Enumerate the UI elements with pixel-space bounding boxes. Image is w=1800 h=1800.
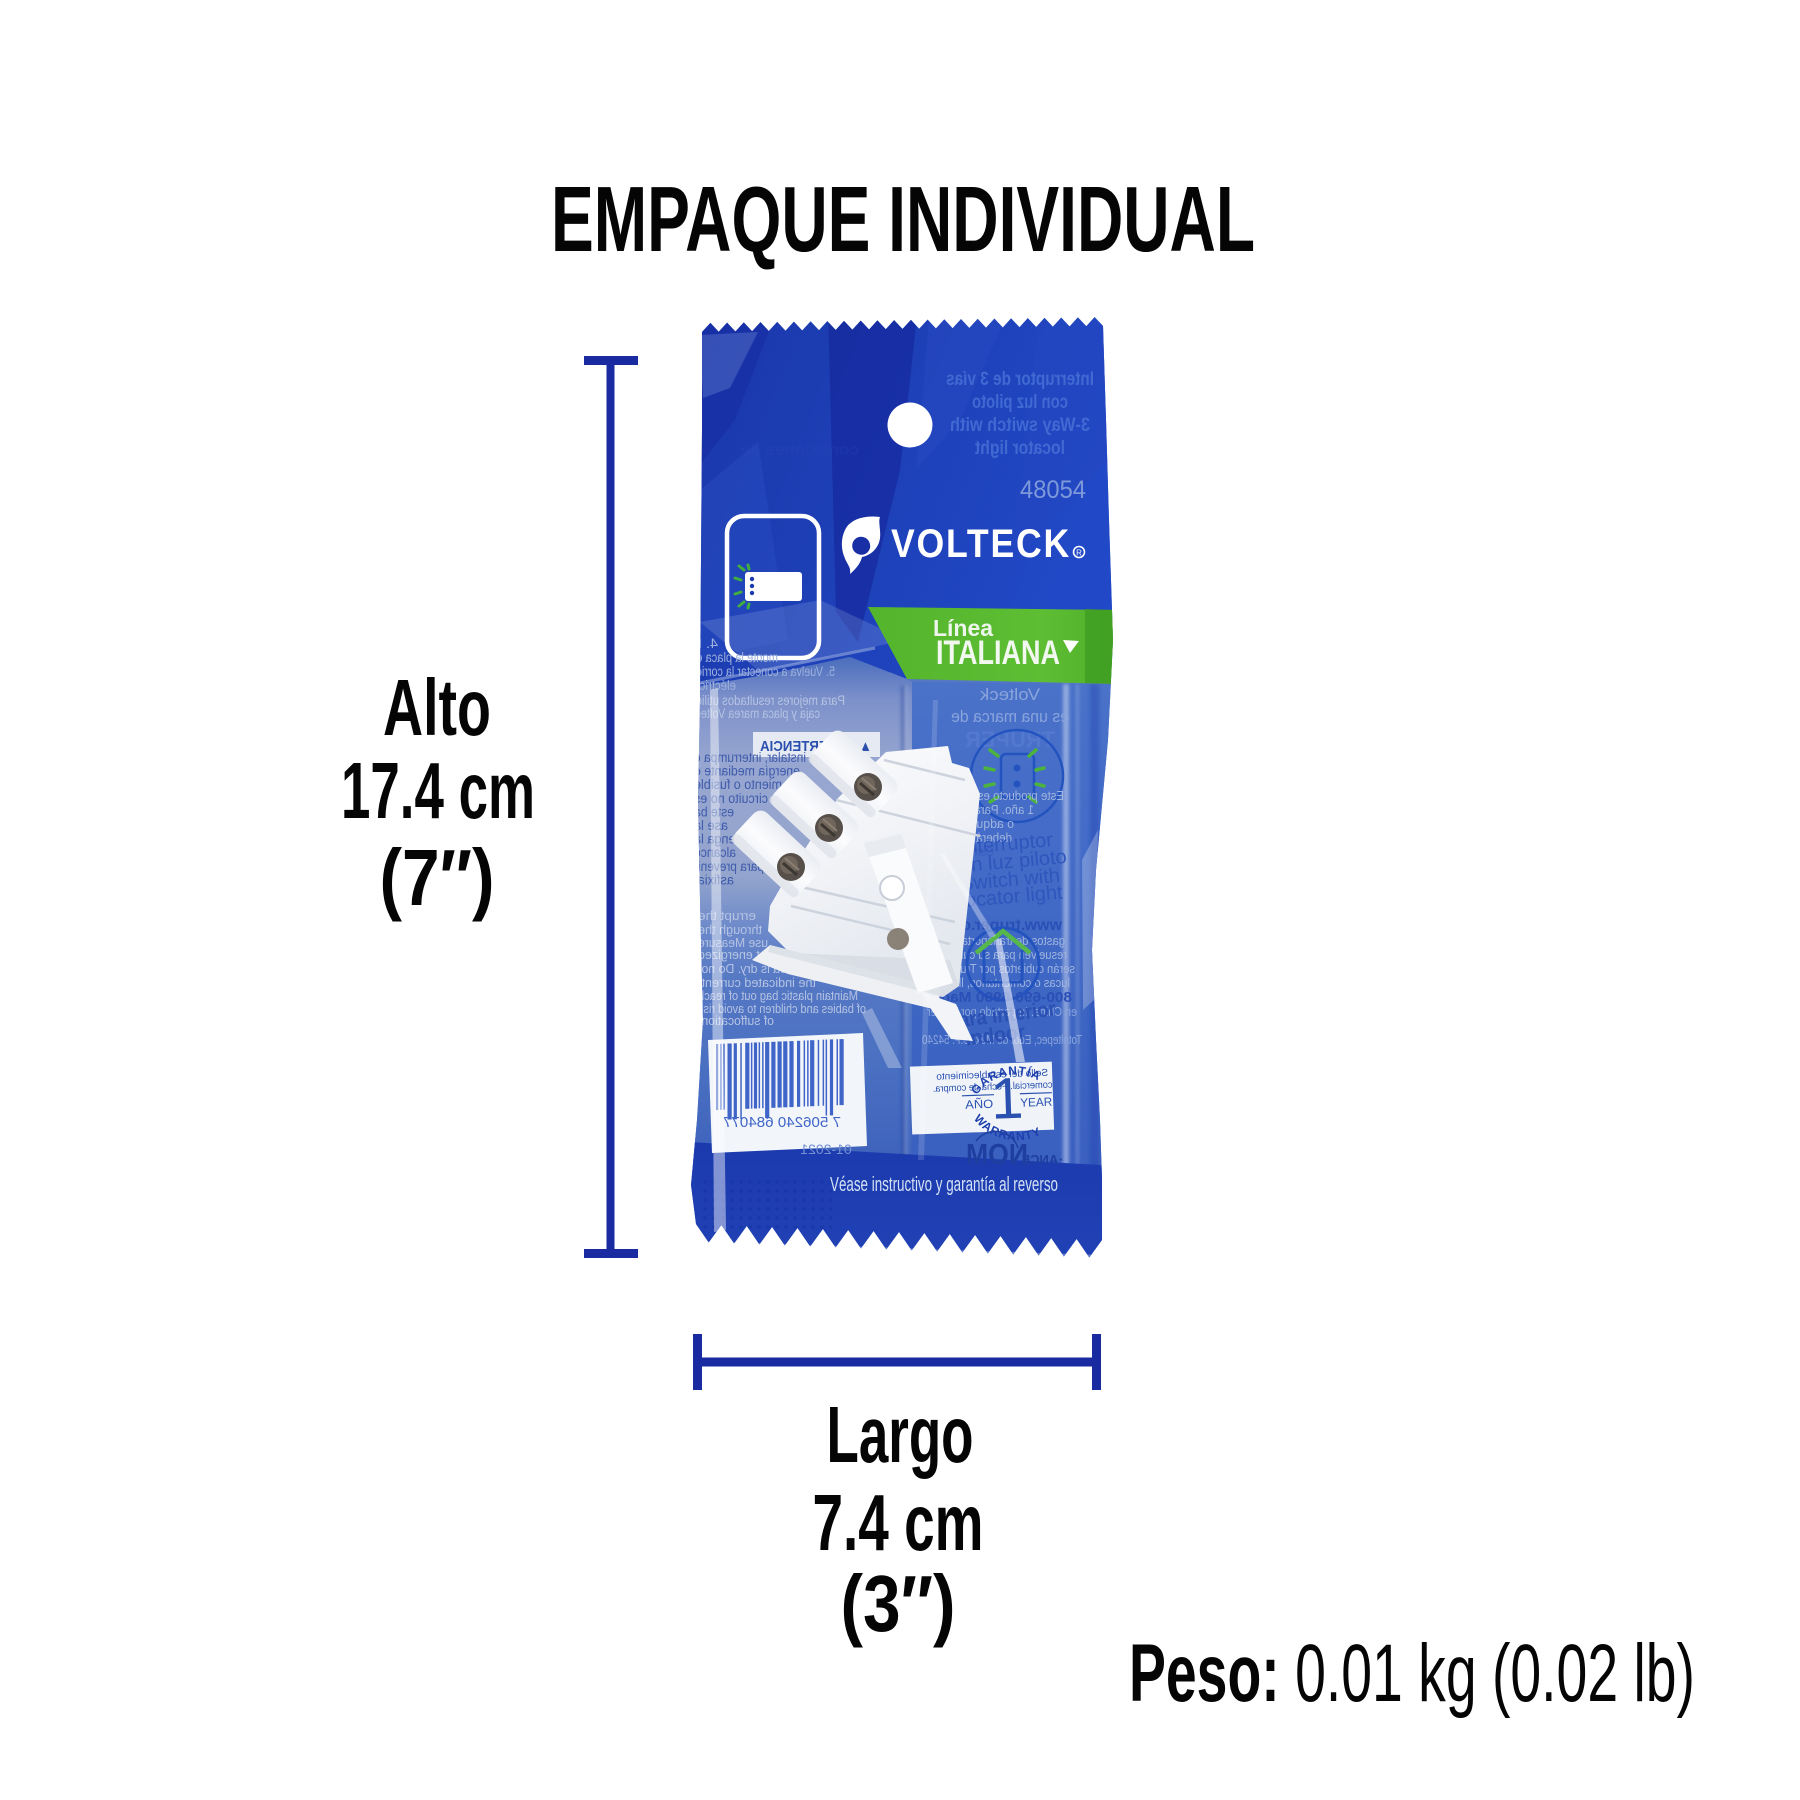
svg-text:5. Vuelva a conectar la corri: 5. Vuelva a conectar la corrien [690, 664, 835, 679]
svg-text:7.4 cm: 7.4 cm [813, 1478, 984, 1567]
svg-text:17.4 cm: 17.4 cm [341, 746, 535, 835]
svg-text:locator light: locator light [975, 437, 1065, 459]
svg-text:monte la placa en: monte la placa en [690, 650, 778, 665]
svg-text:AÑO: AÑO [965, 1097, 993, 1112]
svg-text:NOM: NOM [966, 1139, 1028, 1171]
svg-text:Alto: Alto [383, 663, 491, 752]
svg-text:·ANCE: ·ANCE [1021, 1152, 1062, 1167]
svg-text:3-Way switch with: 3-Way switch with [950, 414, 1090, 436]
svg-text:Interruptor de 3 vías: Interruptor de 3 vías [946, 368, 1094, 390]
svg-text:7 506240 684077: 7 506240 684077 [723, 1114, 841, 1131]
svg-text:Véase instructivo y garantía a: Véase instructivo y garantía al reverso [830, 1174, 1058, 1196]
svg-text:ITALIANA: ITALIANA [936, 634, 1060, 672]
svg-text:con luz piloto: con luz piloto [972, 391, 1068, 413]
svg-text:Largo: Largo [827, 1390, 974, 1479]
svg-text:es una marca de: es una marca de [951, 707, 1069, 726]
svg-text:4. M: 4. M [690, 636, 718, 651]
svg-text:EMPAQUE INDIVIDUAL: EMPAQUE INDIVIDUAL [551, 167, 1255, 271]
svg-text:conexiones de: conexiones de [741, 440, 859, 459]
svg-text:errupt the: errupt the [698, 908, 756, 923]
svg-text:YEAR: YEAR [1020, 1095, 1053, 1110]
svg-text:caja y placa marea Volteck: caja y placa marea Volteck [689, 705, 820, 721]
svg-text:Peso: 0.01 kg (0.02 lb): Peso: 0.01 kg (0.02 lb) [1129, 1628, 1695, 1719]
svg-text:of suffocation.: of suffocation. [698, 1013, 774, 1028]
svg-text:R: R [1076, 549, 1082, 558]
svg-text:(7′′): (7′′) [380, 833, 495, 922]
svg-text:48054: 48054 [1020, 476, 1086, 504]
svg-text:(3′′): (3′′) [841, 1559, 956, 1648]
svg-text:VOLTECK: VOLTECK [891, 522, 1071, 566]
svg-text:Volteck: Volteck [979, 685, 1040, 704]
svg-text:01-2021: 01-2021 [800, 1141, 852, 1157]
